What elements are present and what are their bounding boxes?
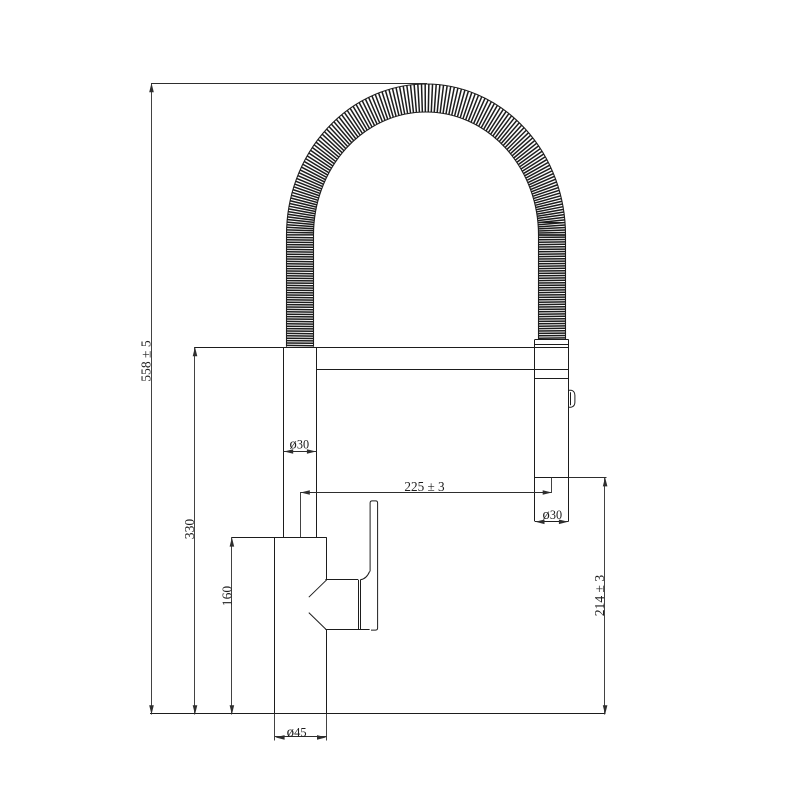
svg-text:558 ± 5: 558 ± 5 <box>139 340 154 382</box>
svg-text:ø45: ø45 <box>287 724 307 740</box>
svg-text:225 ± 3: 225 ± 3 <box>404 479 445 494</box>
svg-text:ø30: ø30 <box>290 437 309 453</box>
svg-text:214 ± 3: 214 ± 3 <box>592 575 607 617</box>
svg-text:160: 160 <box>220 586 235 607</box>
svg-text:ø30: ø30 <box>543 507 562 523</box>
svg-text:330: 330 <box>182 519 197 540</box>
